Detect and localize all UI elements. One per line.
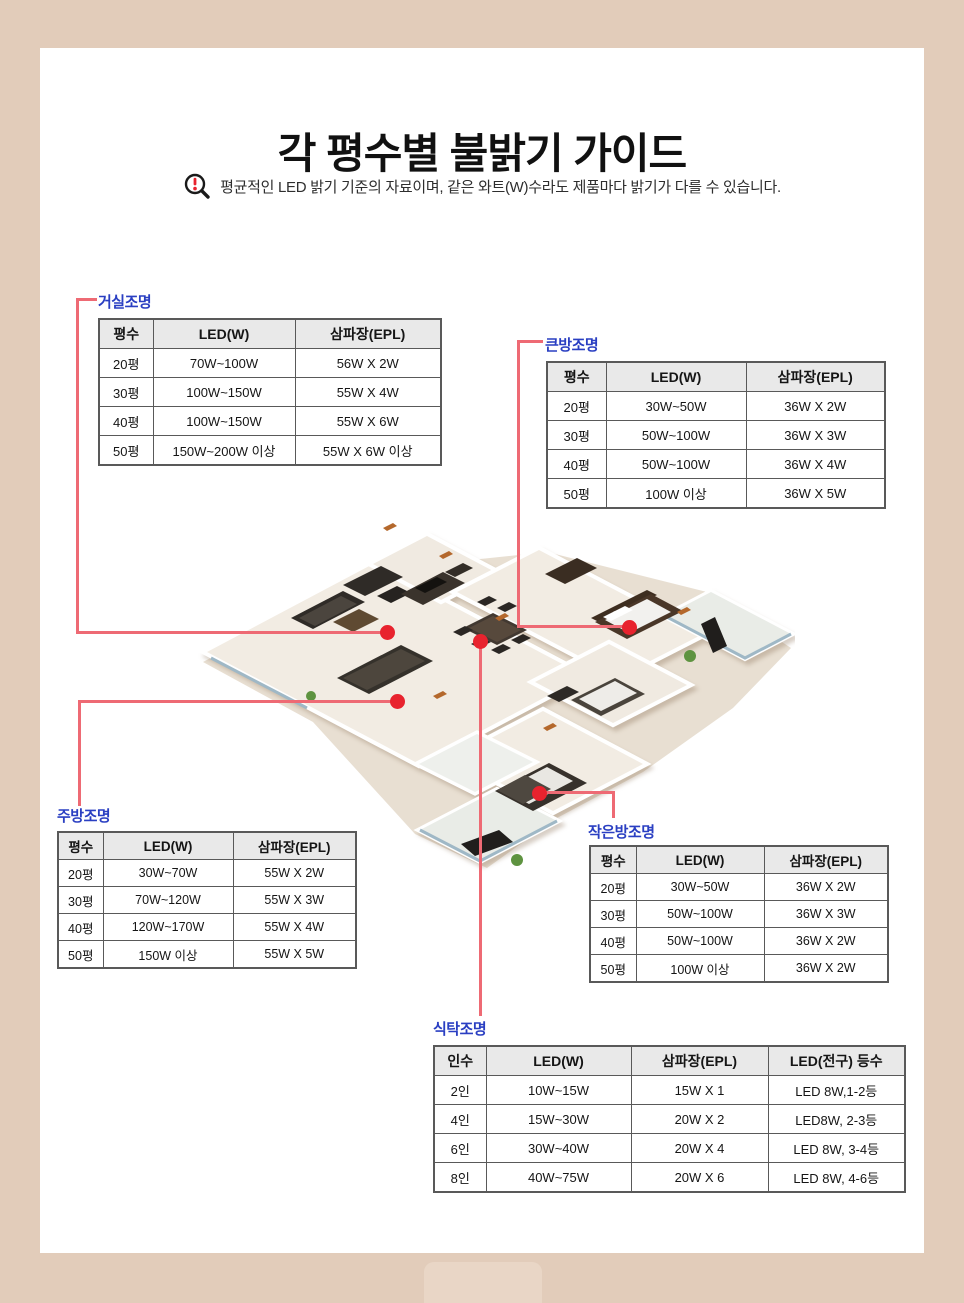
plant <box>684 650 696 662</box>
table-row: 20평70W~100W56W X 2W <box>99 349 441 378</box>
column-header: 삼파장(EPL) <box>295 319 441 349</box>
connector-living <box>76 631 388 634</box>
table-cell: LED 8W, 4-6등 <box>768 1163 905 1193</box>
table-cell: 20평 <box>99 349 153 378</box>
column-header: 평수 <box>547 362 606 392</box>
table-row: 40평100W~150W55W X 6W <box>99 407 441 436</box>
table-cell: 40평 <box>547 450 606 479</box>
column-header: 평수 <box>58 832 103 860</box>
column-header: LED(W) <box>606 362 746 392</box>
table-cell: 56W X 2W <box>295 349 441 378</box>
column-header: LED(W) <box>486 1046 631 1076</box>
table-row: 50평150W~200W 이상55W X 6W 이상 <box>99 436 441 466</box>
table-cell: 50W~100W <box>606 450 746 479</box>
table-cell: 2인 <box>434 1076 486 1105</box>
table-cell: LED8W, 2-3등 <box>768 1105 905 1134</box>
table-cell: LED 8W,1-2등 <box>768 1076 905 1105</box>
kitchen-marker <box>390 694 405 709</box>
column-header: 삼파장(EPL) <box>764 846 888 874</box>
table-cell: 40평 <box>58 914 103 941</box>
table-cell: 20평 <box>547 392 606 421</box>
table-row: 30평50W~100W36W X 3W <box>547 421 885 450</box>
table-cell: 20W X 4 <box>631 1134 768 1163</box>
small-room-marker <box>532 786 547 801</box>
table-cell: 4인 <box>434 1105 486 1134</box>
living-table-label: 거실조명 <box>98 291 151 312</box>
table-row: 30평50W~100W36W X 3W <box>590 901 888 928</box>
door-frame <box>383 523 397 531</box>
table-header-row: 평수LED(W)삼파장(EPL) <box>547 362 885 392</box>
column-header: LED(W) <box>636 846 764 874</box>
table-cell: 40평 <box>99 407 153 436</box>
table-cell: 100W~150W <box>153 378 295 407</box>
table-cell: 30W~70W <box>103 860 233 887</box>
table-cell: LED 8W, 3-4등 <box>768 1134 905 1163</box>
table-cell: 10W~15W <box>486 1076 631 1105</box>
table-cell: 40W~75W <box>486 1163 631 1193</box>
table-row: 20평30W~50W36W X 2W <box>590 874 888 901</box>
table-cell: 50평 <box>547 479 606 509</box>
table-row: 40평120W~170W55W X 4W <box>58 914 356 941</box>
kitchen-lighting-table: 평수LED(W)삼파장(EPL)20평30W~70W55W X 2W30평70W… <box>57 831 357 969</box>
notice-row: 평균적인 LED 밝기 기준의 자료이며, 같은 와트(W)수라도 제품마다 밝… <box>40 172 924 200</box>
table-cell: 30W~50W <box>636 874 764 901</box>
table-cell: 20평 <box>590 874 636 901</box>
table-row: 4인15W~30W20W X 2LED8W, 2-3등 <box>434 1105 905 1134</box>
table-row: 40평50W~100W36W X 4W <box>547 450 885 479</box>
table-cell: 20평 <box>58 860 103 887</box>
column-header: 삼파장(EPL) <box>631 1046 768 1076</box>
table-cell: 30W~50W <box>606 392 746 421</box>
dining-lighting-table: 인수LED(W)삼파장(EPL)LED(전구) 등수2인10W~15W15W X… <box>433 1045 906 1193</box>
table-cell: 120W~170W <box>103 914 233 941</box>
table-cell: 50W~100W <box>636 928 764 955</box>
table-cell: 20W X 6 <box>631 1163 768 1193</box>
table-cell: 30평 <box>58 887 103 914</box>
table-cell: 36W X 5W <box>746 479 885 509</box>
table-cell: 15W~30W <box>486 1105 631 1134</box>
table-cell: 50W~100W <box>636 901 764 928</box>
table-cell: 30W~40W <box>486 1134 631 1163</box>
smallroom-lighting-table: 평수LED(W)삼파장(EPL)20평30W~50W36W X 2W30평50W… <box>589 845 889 983</box>
table-row: 30평100W~150W55W X 4W <box>99 378 441 407</box>
table-cell: 15W X 1 <box>631 1076 768 1105</box>
table-cell: 55W X 4W <box>233 914 356 941</box>
table-header-row: 평수LED(W)삼파장(EPL) <box>99 319 441 349</box>
table-row: 40평50W~100W36W X 2W <box>590 928 888 955</box>
table-cell: 50평 <box>99 436 153 466</box>
connector-smallroom <box>612 791 615 818</box>
table-cell: 36W X 2W <box>764 874 888 901</box>
table-header-row: 평수LED(W)삼파장(EPL) <box>590 846 888 874</box>
connector-dining <box>479 641 482 1016</box>
connector-bigroom <box>517 340 520 627</box>
table-cell: 55W X 5W <box>233 941 356 969</box>
table-header-row: 평수LED(W)삼파장(EPL) <box>58 832 356 860</box>
table-row: 2인10W~15W15W X 1LED 8W,1-2등 <box>434 1076 905 1105</box>
living-room-marker <box>380 625 395 640</box>
column-header: LED(W) <box>153 319 295 349</box>
column-header: 인수 <box>434 1046 486 1076</box>
table-cell: 55W X 4W <box>295 378 441 407</box>
table-cell: 100W~150W <box>153 407 295 436</box>
table-cell: 36W X 3W <box>746 421 885 450</box>
table-cell: 36W X 2W <box>764 928 888 955</box>
table-cell: 30평 <box>590 901 636 928</box>
table-cell: 20W X 2 <box>631 1105 768 1134</box>
connector-bigroom <box>517 340 543 343</box>
table-row: 30평70W~120W55W X 3W <box>58 887 356 914</box>
column-header: 삼파장(EPL) <box>233 832 356 860</box>
table-cell: 150W 이상 <box>103 941 233 969</box>
table-row: 6인30W~40W20W X 4LED 8W, 3-4등 <box>434 1134 905 1163</box>
table-cell: 40평 <box>590 928 636 955</box>
table-header-row: 인수LED(W)삼파장(EPL)LED(전구) 등수 <box>434 1046 905 1076</box>
bigroom-lighting-table: 평수LED(W)삼파장(EPL)20평30W~50W36W X 2W30평50W… <box>546 361 886 509</box>
table-row: 50평100W 이상36W X 5W <box>547 479 885 509</box>
table-row: 20평30W~50W36W X 2W <box>547 392 885 421</box>
connector-living <box>76 298 79 634</box>
column-header: 평수 <box>590 846 636 874</box>
table-cell: 55W X 2W <box>233 860 356 887</box>
connector-kitchen <box>78 700 398 703</box>
notice-text: 평균적인 LED 밝기 기준의 자료이며, 같은 와트(W)수라도 제품마다 밝… <box>220 176 781 197</box>
table-cell: 55W X 3W <box>233 887 356 914</box>
magnifier-warning-icon <box>183 172 211 200</box>
table-cell: 30평 <box>99 378 153 407</box>
table-cell: 55W X 6W <box>295 407 441 436</box>
column-header: 삼파장(EPL) <box>746 362 885 392</box>
infographic-page: { "page": { "title": "각 평수별 불밝기 가이드", "n… <box>0 0 964 1303</box>
column-header: LED(W) <box>103 832 233 860</box>
table-cell: 100W 이상 <box>636 955 764 983</box>
bottom-frame-tab <box>424 1262 542 1303</box>
bigroom-table-label: 큰방조명 <box>545 334 598 355</box>
table-cell: 36W X 2W <box>764 955 888 983</box>
table-cell: 36W X 2W <box>746 392 885 421</box>
table-row: 8인40W~75W20W X 6LED 8W, 4-6등 <box>434 1163 905 1193</box>
living-lighting-table: 평수LED(W)삼파장(EPL)20평70W~100W56W X 2W30평10… <box>98 318 442 466</box>
table-cell: 36W X 4W <box>746 450 885 479</box>
master-room-marker <box>622 620 637 635</box>
table-cell: 30평 <box>547 421 606 450</box>
dining-table-label: 식탁조명 <box>433 1018 486 1039</box>
table-cell: 36W X 3W <box>764 901 888 928</box>
table-cell: 6인 <box>434 1134 486 1163</box>
table-cell: 70W~100W <box>153 349 295 378</box>
smallroom-table-label: 작은방조명 <box>588 821 655 842</box>
table-cell: 50평 <box>58 941 103 969</box>
kitchen-table-label: 주방조명 <box>57 805 110 826</box>
table-cell: 100W 이상 <box>606 479 746 509</box>
connector-smallroom <box>539 791 614 794</box>
table-cell: 8인 <box>434 1163 486 1193</box>
table-cell: 150W~200W 이상 <box>153 436 295 466</box>
table-cell: 55W X 6W 이상 <box>295 436 441 466</box>
connector-bigroom <box>517 625 630 628</box>
connector-living <box>76 298 97 301</box>
table-row: 20평30W~70W55W X 2W <box>58 860 356 887</box>
table-cell: 50W~100W <box>606 421 746 450</box>
table-row: 50평150W 이상55W X 5W <box>58 941 356 969</box>
table-cell: 50평 <box>590 955 636 983</box>
plant <box>511 854 523 866</box>
table-row: 50평100W 이상36W X 2W <box>590 955 888 983</box>
column-header: 평수 <box>99 319 153 349</box>
dining-table-marker <box>473 634 488 649</box>
column-header: LED(전구) 등수 <box>768 1046 905 1076</box>
table-cell: 70W~120W <box>103 887 233 914</box>
connector-kitchen <box>78 700 81 806</box>
